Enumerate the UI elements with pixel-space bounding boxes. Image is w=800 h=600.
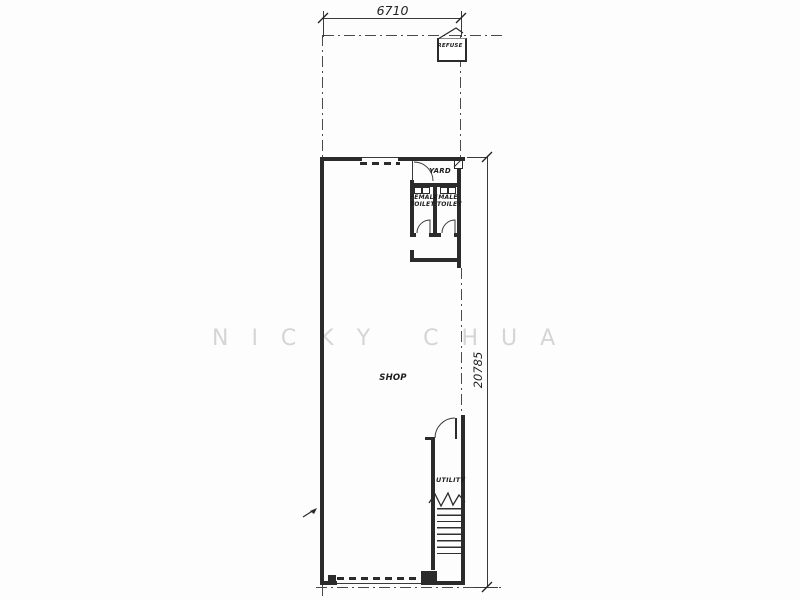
wall-toilet-bottom-c [454, 233, 461, 237]
extension-line-right-bottom [474, 587, 498, 588]
yard-label: YARD [427, 167, 453, 175]
extension-line-top-left [323, 11, 324, 37]
wall-right-lower [461, 415, 465, 585]
wall-left [320, 157, 324, 581]
wall-store-lower [410, 258, 461, 262]
shopfront-threshold-line [337, 583, 421, 584]
female-toilet-door-swing-arc [417, 220, 430, 233]
wall-front-left-jamb [328, 575, 336, 585]
dimension-line-right [487, 157, 488, 588]
female-toilet-label-line2: TOILET [410, 201, 434, 208]
extension-line-right-top [467, 157, 488, 158]
wall-pointer-arrow [303, 510, 314, 517]
wall-right-upper [457, 157, 461, 268]
utility-door-swing-arc [435, 418, 455, 438]
watermark-text: N I C K Y C H U A [212, 326, 563, 351]
fixture-male-cistern [440, 187, 448, 194]
wall-toilet-bottom-b [429, 233, 441, 237]
wall-pointer-arrowhead [310, 508, 317, 514]
window-dashed-opening [360, 162, 400, 165]
dimension-line-top [323, 18, 462, 19]
wall-utility-jamb [425, 437, 435, 440]
wall-bottom-right-segment [421, 581, 465, 585]
boundary-line-left-upper [322, 35, 323, 157]
shopfront-dashed-opening [337, 577, 421, 580]
floor-plan-canvas: N I C K Y C H U A 6710 20785 [0, 0, 800, 600]
dimension-label-height: 20785 [471, 341, 485, 399]
rwp-symbol [454, 160, 463, 169]
linework-overlay [0, 0, 800, 600]
dimension-label-width: 6710 [365, 3, 420, 18]
fixture-male-basin [448, 187, 456, 194]
male-toilet-label-line2: TOILET [437, 201, 459, 208]
wall-utility-left [431, 437, 435, 570]
fixture-female-basin [422, 187, 430, 194]
male-toilet-label-line1: MALE [437, 194, 459, 201]
refuse-label: REFUSE [436, 43, 464, 49]
yard-door-leaf [412, 161, 413, 181]
female-toilet-label-line1: FEMALE [410, 194, 434, 201]
fixture-female-cistern [414, 187, 422, 194]
wall-store-hook [410, 250, 414, 262]
extension-line-top-right [461, 11, 462, 37]
male-toilet-door-swing-arc [442, 220, 455, 233]
boundary-line-top [323, 35, 502, 36]
wall-top-left-segment [320, 157, 362, 161]
male-toilet-label: MALE TOILET [437, 194, 459, 208]
boundary-line-right-mid [461, 268, 462, 418]
boundary-line-left-stub [322, 585, 323, 600]
window-head-line [362, 157, 398, 158]
utility-label: UTILITY [436, 476, 461, 484]
utility-door-leaf [455, 418, 457, 439]
shop-label: SHOP [377, 373, 409, 383]
female-toilet-label: FEMALE TOILET [410, 194, 434, 208]
refuse-chamber [437, 38, 467, 62]
stair-treads [437, 508, 461, 558]
wall-toilet-bottom-a [410, 233, 416, 237]
